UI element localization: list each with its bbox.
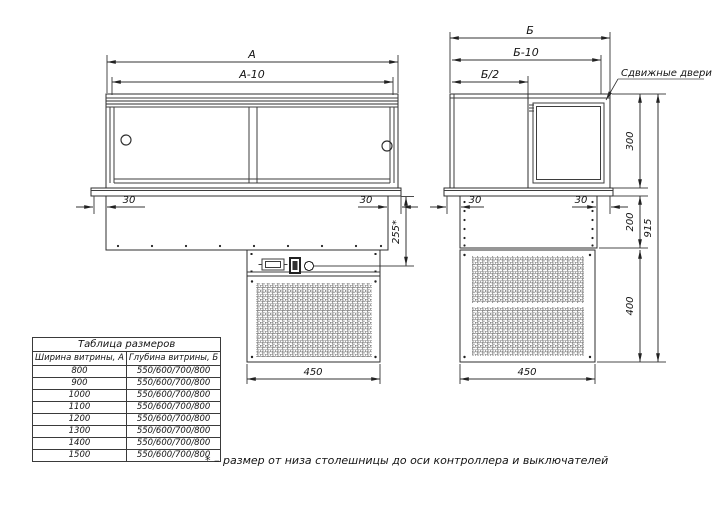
size-table-row: 1500 550/600/700/800: [33, 450, 221, 462]
side-dim-200-label: 200: [625, 212, 636, 231]
side-dim-b10-label: Б-10: [513, 46, 539, 59]
size-table-row: 800 550/600/700/800: [33, 366, 221, 378]
controller-strip: [247, 250, 380, 276]
side-vent-grille-top: [472, 256, 584, 303]
front-dim-30-right-label: 30: [360, 195, 373, 206]
front-dim-30-left-label: 30: [123, 195, 136, 206]
size-table-row: 900 550/600/700/800: [33, 378, 221, 390]
size-table-row: 1300 550/600/700/800: [33, 426, 221, 438]
side-dim-30-right-label: 30: [575, 195, 588, 206]
front-body-rivets: [117, 245, 382, 247]
side-dim-b: [450, 32, 610, 93]
front-dim-255-label: 255*: [391, 220, 402, 244]
front-vent-grille: [247, 276, 380, 362]
front-cabinet: [106, 94, 398, 188]
size-table-row: 1100 550/600/700/800: [33, 402, 221, 414]
technical-drawing-sheet: А А-10: [0, 0, 720, 510]
side-cabinet: [450, 94, 610, 188]
side-vent-grille-bottom: [472, 307, 584, 356]
front-view: А А-10: [76, 48, 418, 384]
left-door-handle: [121, 135, 131, 145]
side-dim-450-label: 450: [517, 367, 536, 378]
size-table-title: Таблица размеров: [33, 338, 221, 352]
side-dim-915-label: 915: [643, 218, 654, 237]
size-table-row: 1000 550/600/700/800: [33, 390, 221, 402]
side-dim-b-label: Б: [526, 24, 534, 37]
round-switch: [305, 262, 314, 271]
sliding-door-panel: [533, 103, 604, 183]
size-table-col-width: Ширина витрины, А: [33, 352, 127, 366]
size-table-header-row: Ширина витрины, А Глубина витрины, Б: [33, 352, 221, 366]
side-dim-b10: [452, 55, 601, 94]
front-lower-body: [106, 196, 388, 250]
right-door-handle: [382, 141, 392, 151]
size-table-row: 1200 550/600/700/800: [33, 414, 221, 426]
size-table-col-depth: Глубина витрины, Б: [126, 352, 220, 366]
side-dim-b2-label: Б/2: [481, 68, 499, 81]
side-dim-30-left-label: 30: [469, 195, 482, 206]
size-table-row: 1400 550/600/700/800: [33, 438, 221, 450]
size-table: Таблица размеров Ширина витрины, А Глуби…: [32, 337, 221, 462]
sliding-doors-callout: [606, 79, 704, 100]
front-dim-a-label: А: [247, 48, 256, 61]
sliding-doors-label: Сдвижные двери: [621, 68, 712, 79]
size-table-title-row: Таблица размеров: [33, 338, 221, 352]
side-vent-box: [460, 250, 595, 362]
side-body-rivets: [463, 201, 593, 247]
front-dim-a10-label: А-10: [238, 68, 265, 81]
footnote: * – размер от низа столешницы до оси кон…: [205, 454, 608, 467]
front-countertop: [91, 188, 401, 196]
side-view: Б Б-10 Б/2 Сдвижные двери: [430, 24, 712, 384]
side-dim-300-label: 300: [625, 131, 636, 150]
side-dim-400-label: 400: [625, 296, 636, 315]
front-dim-450-label: 450: [303, 367, 322, 378]
